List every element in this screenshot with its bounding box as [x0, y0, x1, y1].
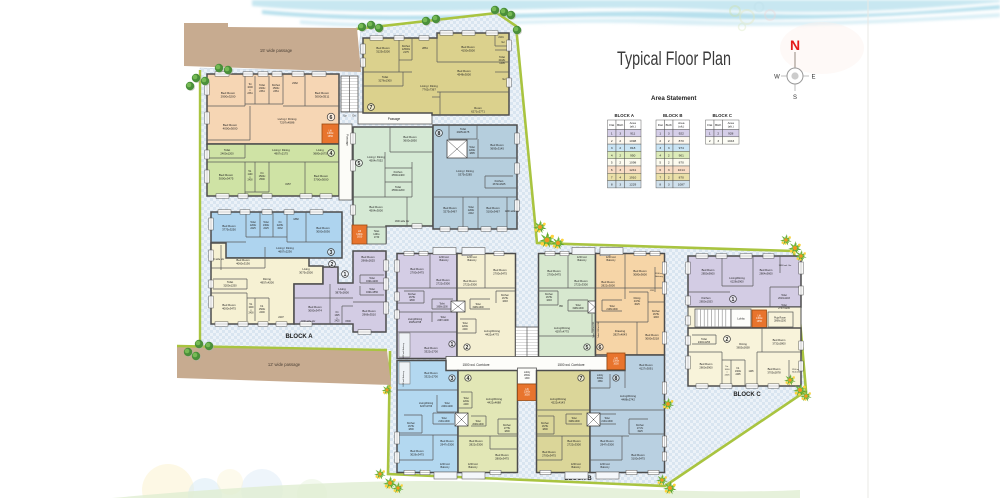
svg-text:Bed Room3732x2800: Bed Room3732x2800	[772, 338, 786, 345]
svg-text:8: 8	[615, 376, 618, 382]
svg-text:Flat: Flat	[609, 123, 614, 127]
svg-text:870: 870	[679, 161, 684, 165]
svg-text:3: 3	[330, 250, 333, 256]
svg-text:BLOCK C: BLOCK C	[712, 113, 732, 118]
svg-text:1200 wd.Balcony: 1200 wd.Balcony	[467, 256, 477, 262]
svg-text:6: 6	[659, 168, 661, 172]
svg-text:2362: 2362	[292, 81, 298, 85]
svg-text:E: E	[811, 75, 815, 81]
svg-text:1500 wd. Corridore: 1500 wd. Corridore	[557, 363, 584, 367]
svg-text:6: 6	[611, 168, 613, 172]
svg-text:Bed Room3322x2700: Bed Room3322x2700	[424, 346, 438, 353]
svg-text:2: 2	[466, 345, 469, 351]
svg-text:3: 3	[659, 146, 661, 150]
svg-text:Bed Room3125x3200: Bed Room3125x3200	[376, 46, 390, 53]
svg-text:8: 8	[438, 131, 441, 137]
svg-text:Bed Room3026x3475: Bed Room3026x3475	[410, 449, 424, 456]
svg-text:3: 3	[611, 146, 613, 150]
svg-text:Living / Dining4907x2175: Living / Dining4907x2175	[272, 148, 290, 155]
svg-text:3: 3	[668, 146, 670, 150]
svg-text:1500: 1500	[345, 320, 351, 323]
svg-text:Bed Room2722x3300: Bed Room2722x3300	[574, 279, 588, 286]
svg-text:Living/Dining4422x4775: Living/Dining4422x4775	[484, 329, 500, 336]
svg-text:15' wide passage: 15' wide passage	[260, 48, 293, 53]
svg-text:870: 870	[679, 175, 684, 179]
svg-text:Bed Room3100x3467: Bed Room3100x3467	[486, 206, 500, 213]
svg-text:Bed Room4548x3000: Bed Room4548x3000	[457, 69, 471, 76]
svg-text:2: 2	[717, 132, 719, 136]
svg-text:1014: 1014	[678, 168, 685, 172]
svg-text:2: 2	[619, 146, 621, 150]
svg-text:1251: 1251	[650, 290, 656, 292]
svg-text:3: 3	[451, 376, 454, 382]
svg-text:Bed Room2947x3300: Bed Room2947x3300	[440, 439, 454, 446]
svg-text:Bed Room2966x3510: Bed Room2966x3510	[362, 309, 376, 316]
svg-text:4: 4	[467, 376, 470, 382]
svg-text:1358 wd. Ver: 1358 wd. Ver	[779, 264, 792, 267]
svg-text:1: 1	[344, 272, 347, 278]
svg-text:Bed Room3322x2700: Bed Room3322x2700	[424, 371, 438, 378]
svg-text:4: 4	[659, 153, 661, 157]
svg-text:Bed Room3695x3145: Bed Room3695x3145	[490, 143, 504, 150]
svg-text:1: 1	[709, 132, 711, 136]
svg-text:3: 3	[619, 132, 621, 136]
svg-text:5: 5	[611, 161, 613, 165]
svg-text:8: 8	[611, 183, 613, 187]
svg-text:5: 5	[586, 345, 589, 351]
svg-text:Toilet 2400x1200: Toilet 2400x1200	[597, 321, 600, 338]
svg-text:Bed Room2822x3000: Bed Room2822x3000	[601, 280, 615, 287]
svg-text:Bed Room3705x2878: Bed Room3705x2878	[767, 367, 781, 374]
svg-text:Bed Room2800x3475: Bed Room2800x3475	[495, 453, 509, 460]
svg-text:Area(sft.): Area(sft.)	[678, 121, 685, 128]
svg-text:Bed Room3000x3511: Bed Room3000x3511	[315, 91, 330, 99]
svg-text:1043: 1043	[727, 139, 734, 143]
svg-text:Living/Dining6228x2900: Living/Dining6228x2900	[729, 276, 745, 283]
svg-text:6: 6	[599, 345, 602, 351]
svg-text:2: 2	[331, 262, 334, 268]
svg-text:1882: 1882	[293, 218, 299, 221]
svg-text:Bed Room4504x3000: Bed Room4504x3000	[369, 205, 383, 212]
svg-text:Lobby: Lobby	[737, 317, 745, 321]
svg-text:Bed Room3000x3218: Bed Room3000x3218	[645, 333, 659, 340]
svg-text:4: 4	[330, 151, 333, 157]
svg-text:4: 4	[611, 153, 613, 157]
svg-text:BLOCK B: BLOCK B	[663, 113, 683, 118]
svg-text:1200 wd. Balcony: 1200 wd. Balcony	[403, 371, 405, 387]
svg-text:2: 2	[611, 139, 613, 143]
svg-text:922: 922	[679, 132, 684, 136]
svg-text:6: 6	[330, 115, 333, 121]
svg-text:Passage: Passage	[388, 117, 401, 121]
svg-text:1910: 1910	[629, 175, 636, 179]
svg-text:5: 5	[358, 161, 361, 167]
svg-text:3: 3	[619, 183, 621, 187]
svg-text:2: 2	[619, 139, 621, 143]
svg-text:1200 wd.Balcony: 1200 wd.Balcony	[600, 463, 610, 469]
svg-text:Living/Dining4297x4775: Living/Dining4297x4775	[554, 326, 570, 333]
svg-text:BLOCK C: BLOCK C	[733, 392, 761, 398]
svg-text:Bed Room3275x3467: Bed Room3275x3467	[443, 206, 457, 213]
svg-text:950: 950	[630, 153, 635, 157]
svg-text:7: 7	[659, 175, 661, 179]
svg-text:Bed Room3100x3475: Bed Room3100x3475	[631, 453, 645, 460]
svg-text:Ver: Ver	[502, 78, 506, 81]
svg-text:8: 8	[659, 183, 661, 187]
svg-text:1241: 1241	[629, 168, 636, 172]
svg-text:2: 2	[709, 139, 711, 143]
svg-text:2861: 2861	[422, 46, 428, 50]
svg-text:2: 2	[726, 337, 729, 343]
svg-text:1098: 1098	[629, 161, 636, 165]
svg-text:W: W	[774, 75, 780, 81]
svg-text:BHK: BHK	[666, 123, 672, 127]
svg-text:901: 901	[679, 153, 684, 157]
svg-text:2: 2	[659, 139, 661, 143]
svg-text:7: 7	[580, 376, 583, 382]
svg-text:911: 911	[630, 132, 635, 136]
svg-text:Bed Room3600x2850: Bed Room3600x2850	[403, 135, 417, 142]
svg-text:Bed Room2966x2625: Bed Room2966x2625	[361, 255, 375, 262]
svg-text:1: 1	[659, 132, 661, 136]
svg-text:1300 wide Ver: 1300 wide Ver	[395, 220, 410, 223]
svg-text:818: 818	[630, 146, 635, 150]
svg-text:974: 974	[679, 146, 684, 150]
svg-text:Living / Dining4504x7052: Living / Dining4504x7052	[367, 155, 385, 162]
svg-text:Typical Floor Plan: Typical Floor Plan	[617, 49, 731, 70]
svg-text:3: 3	[668, 168, 670, 172]
svg-text:Bed Room2722x3300: Bed Room2722x3300	[567, 439, 581, 446]
svg-text:1087: 1087	[678, 183, 685, 187]
svg-text:1500 wd. Corridore: 1500 wd. Corridore	[462, 363, 489, 367]
svg-text:Bed Room2800x3900: Bed Room2800x3900	[699, 362, 713, 369]
svg-text:12' wide passage: 12' wide passage	[268, 362, 301, 367]
svg-text:Bed Room4127x3091: Bed Room4127x3091	[639, 363, 653, 370]
svg-text:928: 928	[728, 132, 733, 136]
svg-text:1229: 1229	[629, 183, 636, 187]
svg-text:Bed Room2700x3475: Bed Room2700x3475	[410, 267, 424, 274]
svg-text:Living / Dining4607x2236: Living / Dining4607x2236	[276, 246, 294, 253]
svg-text:N: N	[790, 37, 800, 53]
svg-text:1200 wd.Balcony: 1200 wd.Balcony	[439, 256, 449, 262]
svg-text:BHK: BHK	[617, 123, 623, 127]
svg-text:Bed Room2822x3300: Bed Room2822x3300	[469, 439, 483, 446]
svg-text:3: 3	[619, 168, 621, 172]
svg-text:1200 wd.Balcony: 1200 wd.Balcony	[606, 256, 616, 262]
svg-text:Bed Room2804x3600: Bed Room2804x3600	[759, 268, 773, 275]
svg-text:BLOCK A: BLOCK A	[615, 113, 634, 118]
svg-text:Bed Room2947x3300: Bed Room2947x3300	[600, 439, 614, 446]
svg-text:Bed Room2700x3475: Bed Room2700x3475	[547, 269, 561, 276]
svg-text:Bed Room2850x3600: Bed Room2850x3600	[701, 268, 715, 275]
svg-text:Living/Dining3247x2706: Living/Dining3247x2706	[419, 402, 434, 408]
svg-text:Bed Room3080x3600: Bed Room3080x3600	[633, 269, 647, 276]
svg-text:1200 wd.Balcony: 1200 wd.Balcony	[468, 463, 478, 469]
svg-text:1: 1	[732, 297, 735, 303]
svg-text:1295: 1295	[748, 371, 754, 373]
svg-text:Bed Room2722x3300: Bed Room2722x3300	[436, 278, 450, 285]
svg-text:3157: 3157	[285, 182, 291, 186]
svg-text:1200 wd.Balcony: 1200 wd.Balcony	[577, 256, 587, 262]
svg-text:Area(sft.): Area(sft.)	[630, 121, 637, 128]
svg-text:Area Statement: Area Statement	[651, 95, 696, 102]
svg-text:Bed Room3000x3475: Bed Room3000x3475	[219, 173, 234, 181]
svg-text:Bed Room3000x3474: Bed Room3000x3474	[308, 305, 322, 312]
svg-text:Toilet 2400x1200: Toilet 2400x1200	[592, 321, 595, 338]
svg-text:3: 3	[668, 132, 670, 136]
svg-text:Flat: Flat	[658, 123, 663, 127]
svg-text:Living/Dining4488x2742: Living/Dining4488x2742	[620, 394, 636, 401]
svg-text:Living / Dining7762x7367: Living / Dining7762x7367	[420, 84, 438, 91]
svg-text:1200 wd. Balcony: 1200 wd. Balcony	[403, 343, 405, 359]
svg-text:Living/Dining4222x4143: Living/Dining4222x4143	[550, 397, 566, 404]
svg-text:Living / Dining5375x3285: Living / Dining5375x3285	[456, 169, 474, 176]
svg-text:7: 7	[611, 175, 613, 179]
svg-text:Bed Room4000x3000: Bed Room4000x3000	[223, 123, 238, 131]
svg-text:Ver: Ver	[501, 41, 505, 44]
svg-text:1200 wd.Balcony: 1200 wd.Balcony	[571, 463, 581, 469]
svg-text:2: 2	[668, 139, 670, 143]
svg-text:1098: 1098	[629, 139, 636, 143]
svg-text:Area(sft.): Area(sft.)	[728, 121, 735, 128]
svg-text:Bed Room3000x3036: Bed Room3000x3036	[316, 226, 330, 233]
svg-text:Up: Up	[343, 114, 347, 118]
svg-text:BHK: BHK	[715, 123, 721, 127]
svg-text:BLOCK A: BLOCK A	[285, 334, 313, 340]
svg-text:2: 2	[619, 153, 621, 157]
svg-text:2: 2	[668, 175, 670, 179]
svg-text:Bed Room2700x3475: Bed Room2700x3475	[542, 450, 556, 457]
svg-text:Bed Room2700x3475: Bed Room2700x3475	[493, 268, 507, 275]
svg-text:Living/Dining2925x2708: Living/Dining2925x2708	[408, 318, 423, 324]
svg-text:Puja Room2866x1200: Puja Room2866x1200	[774, 317, 787, 323]
svg-text:Passage: Passage	[346, 134, 350, 146]
svg-text:Bed Room2722x3300: Bed Room2722x3300	[463, 279, 477, 286]
svg-text:Dn: Dn	[352, 114, 356, 118]
svg-text:5: 5	[659, 161, 661, 165]
svg-text:4: 4	[619, 175, 621, 179]
svg-text:7: 7	[370, 105, 373, 111]
svg-text:Bed Room2900x3200: Bed Room2900x3200	[221, 91, 236, 99]
svg-text:Bed Room4000x3475: Bed Room4000x3475	[222, 303, 236, 310]
svg-text:870: 870	[679, 139, 684, 143]
svg-text:Living/Dining4422x4688: Living/Dining4422x4688	[486, 397, 502, 404]
svg-text:Bed Room4060x3136: Bed Room4060x3136	[236, 258, 250, 265]
svg-text:2101: 2101	[498, 36, 504, 39]
svg-text:Flat: Flat	[707, 123, 712, 127]
svg-text:2: 2	[668, 161, 670, 165]
svg-text:2: 2	[668, 153, 670, 157]
svg-text:2: 2	[619, 161, 621, 165]
svg-text:Living / Dining7207x4586: Living / Dining7207x4586	[278, 117, 297, 125]
svg-text:1200 wd.Balcony: 1200 wd.Balcony	[440, 463, 450, 469]
svg-text:Bed Room4150x3500: Bed Room4150x3500	[461, 45, 475, 52]
svg-text:2207: 2207	[278, 316, 284, 319]
svg-text:Bed Room3700x3000: Bed Room3700x3000	[314, 174, 329, 182]
svg-text:3: 3	[717, 139, 719, 143]
svg-text:1: 1	[611, 132, 613, 136]
svg-text:Bed Room3775x3250: Bed Room3775x3250	[222, 224, 236, 231]
svg-text:3: 3	[668, 183, 670, 187]
svg-text:S: S	[793, 95, 797, 101]
svg-text:1: 1	[451, 342, 454, 348]
